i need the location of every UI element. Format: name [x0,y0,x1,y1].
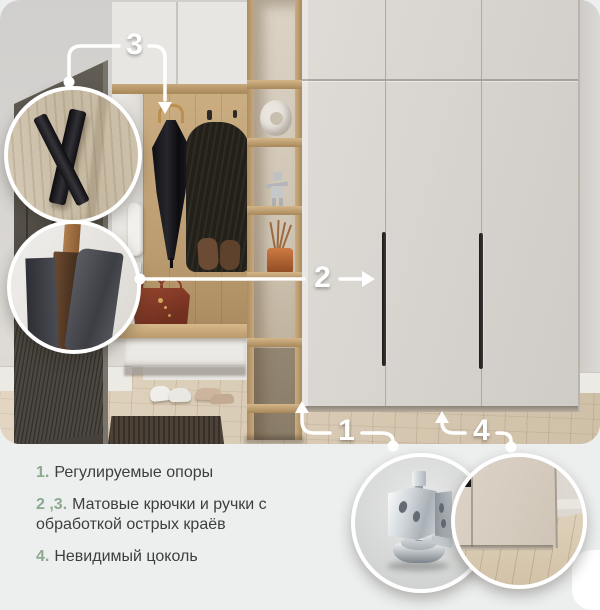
heel-shoe [210,393,234,404]
umbrella-tip [170,258,173,268]
wardrobe [302,0,580,412]
shelf [247,404,302,413]
bag-chain [158,298,163,303]
decor-figurine [271,186,283,198]
shelf [247,272,302,281]
shelf [247,80,302,89]
shelf [247,138,302,147]
door-bottom-closeup [451,453,558,550]
legend: 1.Регулируемые опоры 2 ,3.Матовые крючки… [36,455,314,567]
legend-number: 4. [36,548,49,565]
column-frame [295,0,302,440]
bench-shadow [124,366,246,376]
legend-text: Матовые крючки и ручки с обработкой остр… [36,496,267,533]
wall-hook [233,110,237,118]
door-seam-closeup [471,453,473,547]
inset-edge-closeup [7,220,141,354]
boot [219,239,241,270]
wardrobe-handle [382,232,386,366]
column-frame [247,0,254,440]
legend-item: 4.Невидимый цоколь [36,547,314,567]
baseboard [580,372,600,393]
legend-text: Регулируемые опоры [54,464,213,481]
reed-diffuser [267,248,293,274]
rod-top [412,471,426,486]
baseboard [0,366,16,391]
wall-hook [207,110,212,120]
decor-figurine [273,172,282,181]
decor-vase-hole [270,112,283,125]
inset-hook-closeup [4,86,142,224]
legend-text: Невидимый цоколь [54,548,197,565]
column-lower-shade [254,348,295,440]
inset-plinth-closeup [451,453,587,589]
cabinet-seam [176,2,178,86]
callout-number-4: 4 [473,414,489,448]
legend-number: 2 ,3. [36,496,67,513]
baseboard-closeup [557,499,583,510]
boot [197,237,219,270]
bench-drawer [124,338,246,366]
plinth-shadow [302,406,578,412]
callout-number-2: 2 [314,261,330,295]
handle-tip-closeup [465,469,471,487]
hanging-coat [186,122,250,272]
shelf [247,338,302,347]
legend-item: 1.Регулируемые опоры [36,463,314,483]
edge-panel [25,258,58,353]
bracket-hole [441,519,446,528]
doormat [108,416,224,444]
legend-number: 1. [36,464,49,481]
bracket-hole [439,503,444,513]
column-floor-shadow [245,436,304,444]
wardrobe-top-seam [302,79,578,81]
legend-item: 2 ,3.Матовые крючки и ручки с обработкой… [36,495,314,535]
wall [580,0,600,392]
wardrobe-handle [479,233,483,369]
sneaker [169,388,191,403]
hallway-photo [0,0,600,444]
shelf [247,206,302,215]
callout-number-1: 1 [338,414,354,448]
wardrobe-edge [302,0,308,412]
door-bottom-shadow [451,545,553,551]
callout-number-3: 3 [126,28,142,62]
